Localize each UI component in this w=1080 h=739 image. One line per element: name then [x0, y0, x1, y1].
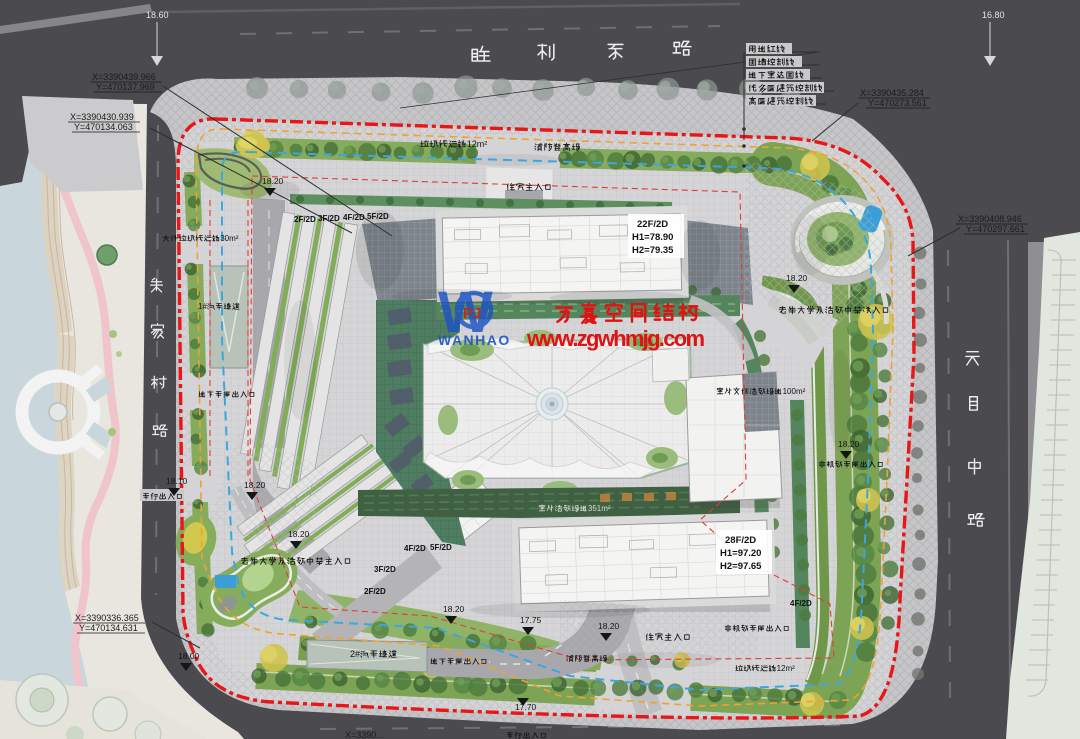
svg-text:17.70: 17.70: [515, 702, 537, 712]
svg-text:18.20: 18.20: [244, 480, 266, 490]
svg-text:5F/2D: 5F/2D: [430, 543, 452, 552]
svg-text:2F/2D: 2F/2D: [294, 215, 316, 224]
svg-text:4F/2D: 4F/2D: [790, 599, 812, 608]
svg-text:H1=97.20: H1=97.20: [720, 548, 761, 559]
svg-text:3F/2D: 3F/2D: [374, 565, 396, 574]
svg-text:18.00: 18.00: [178, 651, 200, 661]
svg-text:WANHAO: WANHAO: [438, 332, 511, 348]
svg-text:4F/2D: 4F/2D: [404, 544, 426, 553]
svg-text:H2=97.65: H2=97.65: [720, 561, 762, 572]
svg-text:2F/2D: 2F/2D: [364, 587, 386, 596]
svg-text:30m²: 30m²: [220, 234, 239, 243]
svg-text:18.20: 18.20: [443, 604, 465, 614]
svg-text:X=3390336.365: X=3390336.365: [75, 613, 139, 623]
svg-text:18.20: 18.20: [838, 439, 860, 449]
svg-text:www.zgwhmjg.com: www.zgwhmjg.com: [526, 326, 705, 351]
svg-text:17.75: 17.75: [520, 615, 542, 625]
svg-text:28F/2D: 28F/2D: [725, 535, 756, 546]
svg-text:4F/2D: 4F/2D: [343, 213, 365, 222]
svg-text:1#: 1#: [198, 302, 207, 311]
svg-text:12m²: 12m²: [467, 139, 488, 149]
svg-text:Y=470134.631: Y=470134.631: [79, 623, 138, 633]
svg-text:18.20: 18.20: [786, 273, 808, 283]
svg-text:22F/2D: 22F/2D: [637, 219, 668, 230]
svg-text:12m²: 12m²: [777, 664, 796, 673]
svg-text:PJ: PJ: [463, 305, 481, 322]
svg-text:18.60: 18.60: [146, 10, 169, 20]
svg-text:X=3390439.966: X=3390439.966: [92, 72, 156, 82]
svg-text:X=3390...: X=3390...: [345, 730, 384, 739]
svg-text:H2=79.35: H2=79.35: [632, 245, 674, 256]
svg-text:351m²: 351m²: [588, 504, 611, 513]
svg-text:2#: 2#: [350, 649, 360, 659]
svg-text:X=3390435.284: X=3390435.284: [860, 88, 924, 98]
svg-text:18.20: 18.20: [598, 621, 620, 631]
svg-text:18.20: 18.20: [262, 176, 284, 186]
svg-text:16.80: 16.80: [982, 10, 1005, 20]
svg-text:H1=78.90: H1=78.90: [632, 232, 673, 243]
svg-text:X=3390430.939: X=3390430.939: [70, 112, 134, 122]
svg-text:5F/2D: 5F/2D: [367, 212, 389, 221]
svg-text:Y=470137.969: Y=470137.969: [96, 82, 155, 92]
svg-text:Y=470134.063: Y=470134.063: [74, 122, 133, 132]
svg-text:Y=470273.561: Y=470273.561: [868, 98, 927, 108]
svg-text:X=3390408.946: X=3390408.946: [958, 214, 1022, 224]
svg-text:100m²: 100m²: [783, 387, 806, 396]
svg-text:Y=470297.661: Y=470297.661: [966, 224, 1025, 234]
svg-text:18.20: 18.20: [288, 529, 310, 539]
svg-text:3F/2D: 3F/2D: [318, 214, 340, 223]
svg-text:18.10: 18.10: [166, 476, 188, 486]
